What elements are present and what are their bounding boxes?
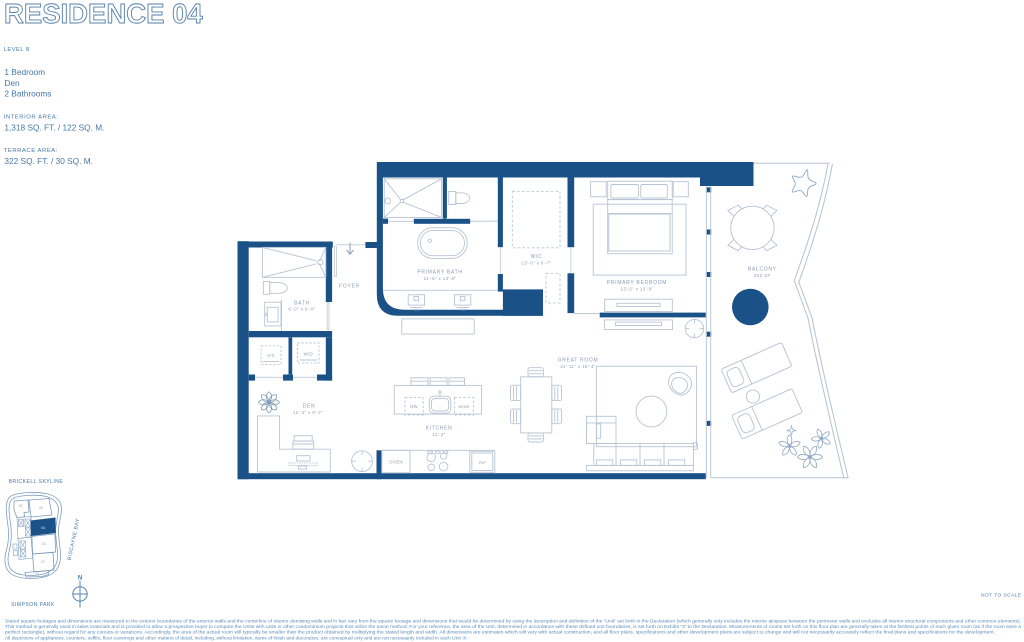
svg-text:1 Bedroom: 1 Bedroom — [4, 67, 45, 77]
svg-text:PRIMARY BEDROOM: PRIMARY BEDROOM — [607, 280, 667, 286]
svg-text:2 Bathrooms: 2 Bathrooms — [4, 89, 51, 99]
svg-text:SIMPSON PARK: SIMPSON PARK — [11, 602, 55, 608]
svg-text:TERRACE AREA:: TERRACE AREA: — [4, 148, 58, 154]
svg-text:03: 03 — [42, 542, 46, 546]
svg-text:INTERIOR AREA:: INTERIOR AREA: — [4, 115, 59, 121]
svg-text:N: N — [78, 576, 82, 582]
svg-text:PRIMARY BATH: PRIMARY BATH — [417, 270, 462, 276]
svg-text:RESIDENCE 04: RESIDENCE 04 — [4, 0, 203, 29]
svg-text:02: 02 — [41, 560, 45, 564]
svg-text:BRICKELL SKYLINE: BRICKELL SKYLINE — [9, 479, 64, 485]
svg-text:1,318 SQ. FT. / 122 SQ. M.: 1,318 SQ. FT. / 122 SQ. M. — [4, 122, 104, 132]
svg-text:Stated square footages and dim: Stated square footages and dimensions ar… — [5, 618, 1021, 623]
svg-text:DEN: DEN — [303, 404, 316, 410]
svg-text:04: 04 — [41, 526, 45, 530]
svg-text:13'-0" x 6'-7": 13'-0" x 6'-7" — [521, 260, 551, 265]
svg-text:322 SQ. FT. / 30 SQ. M.: 322 SQ. FT. / 30 SQ. M. — [4, 156, 93, 166]
svg-text:05: 05 — [19, 504, 23, 508]
svg-text:BISCAYNE BAY: BISCAYNE BAY — [67, 518, 82, 561]
svg-text:11'-2": 11'-2" — [432, 432, 445, 437]
svg-text:R/F: R/F — [479, 460, 486, 465]
svg-text:LEVEL 8: LEVEL 8 — [4, 47, 30, 53]
svg-text:W/D: W/D — [304, 352, 313, 357]
svg-text:BALCONY: BALCONY — [748, 267, 777, 273]
svg-text:All depictions of appliances,: All depictions of appliances, counters, … — [5, 634, 467, 640]
svg-text:13'-0" x 13'-0": 13'-0" x 13'-0" — [620, 286, 653, 291]
svg-text:Den: Den — [4, 78, 20, 88]
svg-text:KITCHEN: KITCHEN — [426, 426, 453, 432]
svg-text:WIC: WIC — [531, 254, 543, 260]
svg-text:11'-5" x 13'-0": 11'-5" x 13'-0" — [424, 276, 457, 281]
svg-text:FOYER: FOYER — [339, 284, 360, 290]
svg-text:perfect rectangle), without re: perfect rectangle), without regard for a… — [5, 630, 995, 635]
svg-text:GREAT ROOM: GREAT ROOM — [558, 358, 599, 364]
svg-text:01: 01 — [36, 573, 40, 577]
svg-text:06: 06 — [39, 506, 43, 510]
svg-text:A/C: A/C — [267, 353, 275, 358]
svg-text:31'-11" x 15'-4": 31'-11" x 15'-4" — [560, 364, 596, 369]
svg-text:322 SF: 322 SF — [754, 273, 771, 278]
svg-text:NOT TO SCALE: NOT TO SCALE — [981, 593, 1021, 599]
svg-text:OVEN: OVEN — [389, 460, 403, 465]
svg-text:BATH: BATH — [294, 300, 310, 306]
svg-text:This method is generally used: This method is generally used in sales m… — [5, 624, 1022, 629]
svg-text:SINK: SINK — [460, 308, 466, 312]
svg-text:WINE: WINE — [458, 404, 469, 409]
svg-text:12'-4" x 9'-2": 12'-4" x 9'-2" — [293, 410, 323, 415]
svg-text:6'-0" x 9'-0": 6'-0" x 9'-0" — [288, 307, 315, 312]
svg-text:DW: DW — [410, 404, 418, 409]
svg-text:SINK: SINK — [413, 308, 419, 312]
